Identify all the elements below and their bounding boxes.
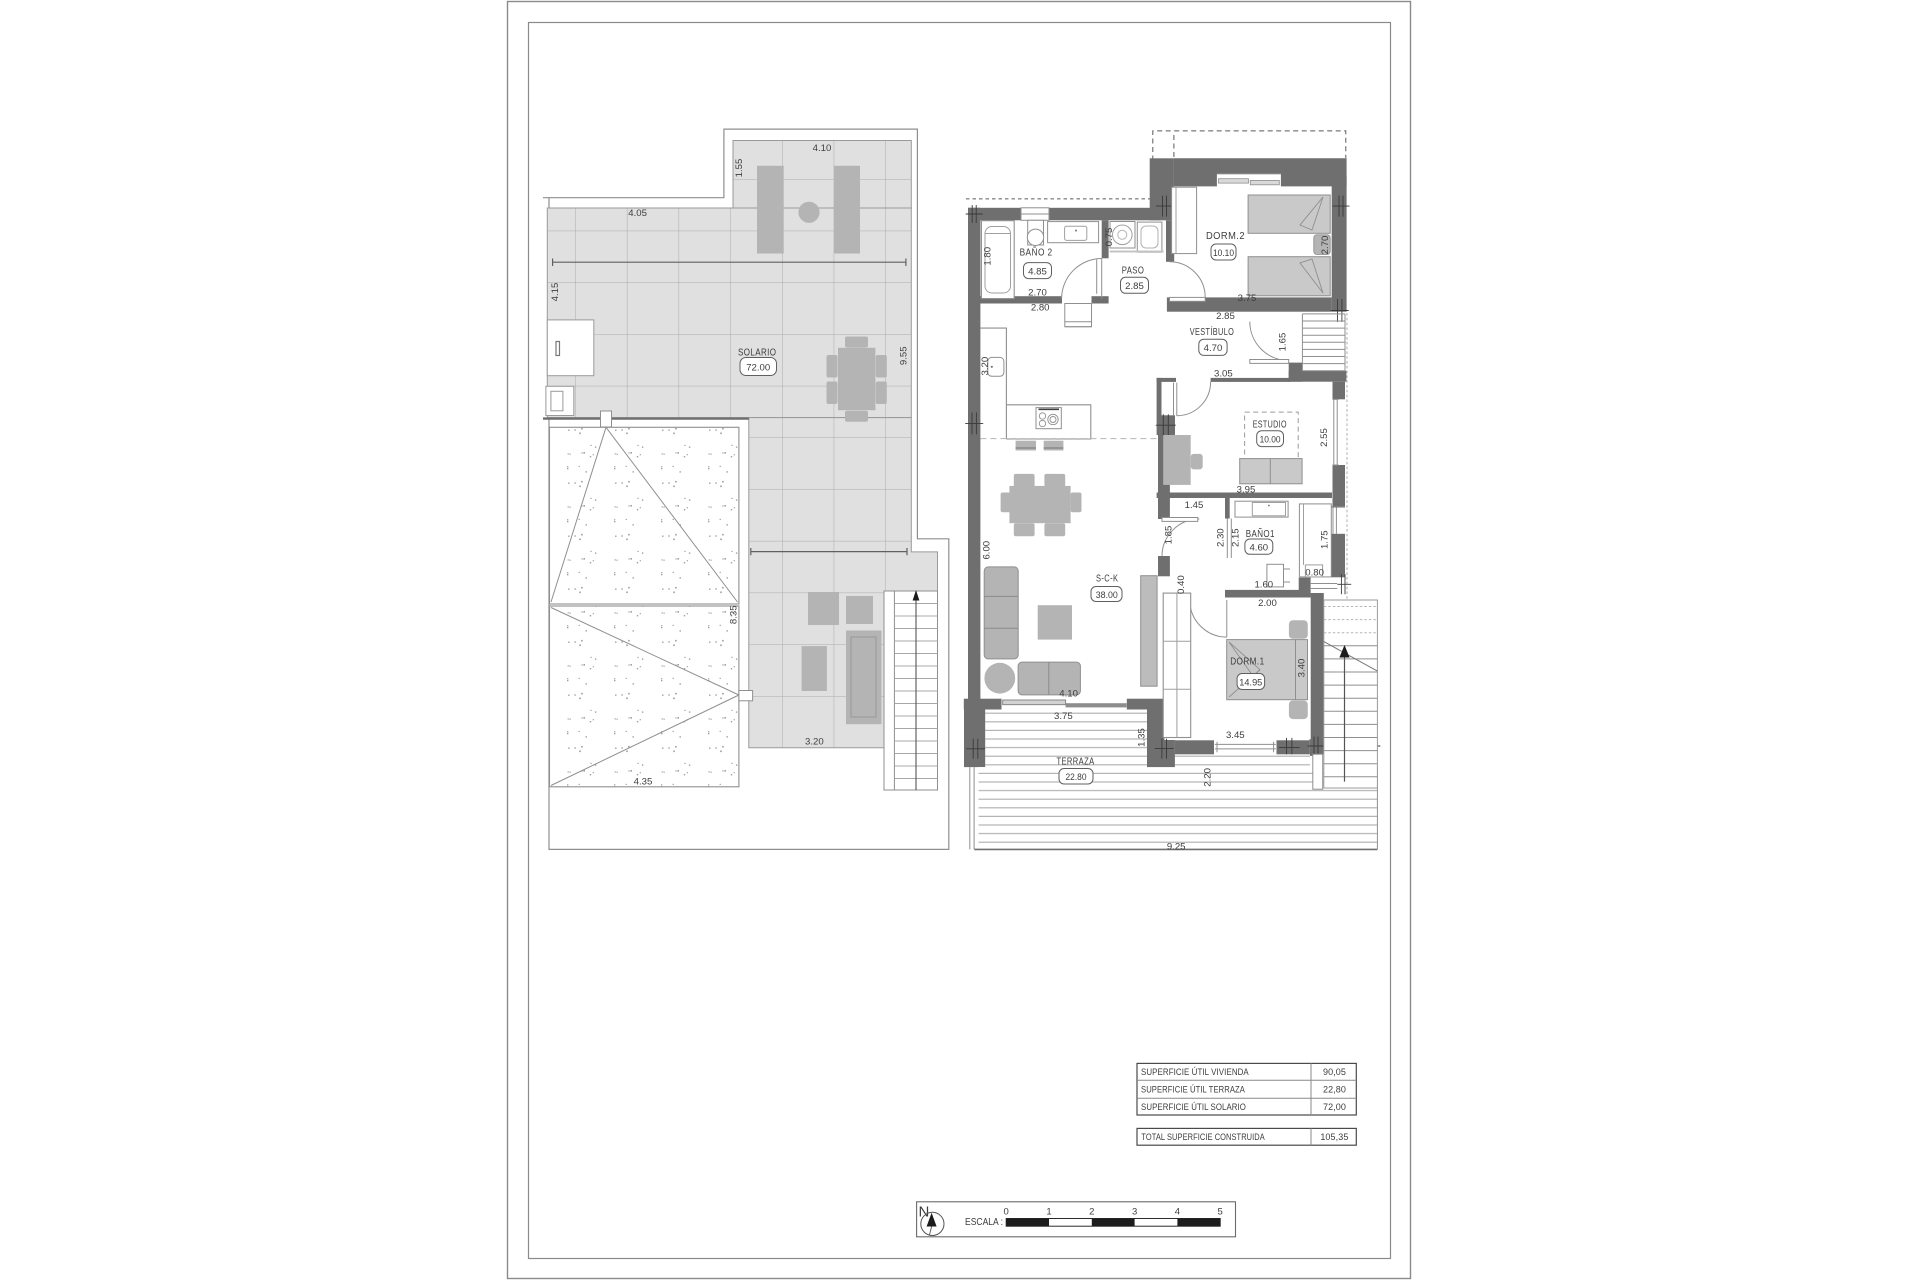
svg-text:PASO: PASO (1122, 266, 1145, 277)
svg-text:2.80: 2.80 (1031, 303, 1050, 314)
svg-text:4: 4 (1175, 1207, 1180, 1218)
svg-text:2.85: 2.85 (1125, 281, 1144, 292)
svg-text:4.85: 4.85 (1028, 266, 1047, 277)
svg-text:4.05: 4.05 (628, 208, 647, 219)
svg-text:9.25: 9.25 (1167, 842, 1186, 853)
svg-text:90,05: 90,05 (1323, 1067, 1346, 1077)
svg-text:3.20: 3.20 (805, 737, 824, 748)
svg-text:22,80: 22,80 (1323, 1085, 1346, 1095)
svg-text:105,35: 105,35 (1320, 1132, 1348, 1142)
svg-text:22.80: 22.80 (1066, 772, 1087, 783)
svg-text:4.10: 4.10 (1059, 689, 1078, 700)
svg-text:N: N (919, 1204, 930, 1221)
svg-text:1: 1 (1046, 1207, 1051, 1218)
svg-text:2.00: 2.00 (1258, 598, 1277, 609)
svg-text:72,00: 72,00 (1323, 1102, 1346, 1112)
svg-text:1.55: 1.55 (734, 159, 745, 178)
svg-text:8.35: 8.35 (729, 605, 740, 624)
svg-text:14.95: 14.95 (1239, 677, 1262, 688)
svg-text:2.15: 2.15 (1231, 528, 1242, 547)
svg-text:72.00: 72.00 (746, 362, 770, 373)
svg-text:1.35: 1.35 (1137, 728, 1148, 747)
svg-text:10.10: 10.10 (1213, 248, 1234, 259)
svg-text:SOLARIO: SOLARIO (738, 347, 777, 358)
svg-text:2.70: 2.70 (1320, 236, 1331, 255)
svg-text:3.95: 3.95 (1237, 485, 1256, 496)
svg-text:3: 3 (1132, 1207, 1137, 1218)
svg-text:0.40: 0.40 (1176, 575, 1187, 594)
svg-text:3.20: 3.20 (980, 357, 991, 376)
svg-text:38.00: 38.00 (1096, 590, 1118, 601)
svg-text:1.80: 1.80 (983, 247, 994, 266)
svg-text:2.20: 2.20 (1202, 768, 1213, 787)
svg-text:SUPERFICIE ÚTIL TERRAZA: SUPERFICIE ÚTIL TERRAZA (1141, 1085, 1245, 1095)
svg-text:5: 5 (1218, 1207, 1223, 1218)
svg-text:0.80: 0.80 (1305, 567, 1324, 578)
svg-text:4.10: 4.10 (813, 143, 832, 154)
svg-text:10.00: 10.00 (1260, 435, 1281, 446)
svg-text:SUPERFICIE ÚTIL SOLARIO: SUPERFICIE ÚTIL SOLARIO (1141, 1102, 1246, 1112)
svg-text:4.15: 4.15 (550, 283, 561, 302)
svg-text:2.55: 2.55 (1319, 428, 1330, 447)
svg-text:6.00: 6.00 (982, 541, 993, 560)
svg-text:3.05: 3.05 (1214, 368, 1233, 379)
svg-text:0.75: 0.75 (1104, 228, 1115, 247)
svg-text:TOTAL SUPERFICIE CONSTRUIDA: TOTAL SUPERFICIE CONSTRUIDA (1141, 1132, 1264, 1142)
svg-text:DORM.1: DORM.1 (1230, 657, 1264, 668)
svg-text:3.45: 3.45 (1226, 730, 1245, 741)
svg-text:9.55: 9.55 (899, 346, 910, 365)
svg-text:1.75: 1.75 (1320, 530, 1331, 549)
svg-text:TERRAZA: TERRAZA (1057, 757, 1095, 768)
svg-text:SUPERFICIE ÚTIL VIVIENDA: SUPERFICIE ÚTIL VIVIENDA (1141, 1067, 1249, 1077)
svg-text:3.40: 3.40 (1297, 659, 1308, 678)
svg-text:BAÑO1: BAÑO1 (1246, 527, 1275, 540)
svg-text:2.30: 2.30 (1216, 528, 1227, 547)
svg-text:ESCALA :: ESCALA : (965, 1217, 1003, 1228)
svg-text:1.65: 1.65 (1278, 333, 1289, 352)
svg-text:1.45: 1.45 (1185, 500, 1204, 511)
svg-text:2.70: 2.70 (1028, 287, 1047, 298)
svg-text:4.70: 4.70 (1204, 343, 1223, 354)
svg-text:3.75: 3.75 (1054, 711, 1073, 722)
svg-text:2: 2 (1089, 1207, 1094, 1218)
svg-text:1.85: 1.85 (1164, 526, 1175, 545)
svg-text:2.85: 2.85 (1216, 311, 1235, 322)
svg-text:S-C-K: S-C-K (1096, 573, 1118, 584)
svg-text:1.60: 1.60 (1254, 579, 1273, 590)
svg-text:VESTÍBULO: VESTÍBULO (1190, 325, 1235, 338)
svg-text:4.35: 4.35 (634, 777, 653, 788)
svg-text:DORM.2: DORM.2 (1206, 231, 1245, 242)
svg-text:4.60: 4.60 (1249, 543, 1268, 554)
svg-text:BAÑO 2: BAÑO 2 (1020, 246, 1053, 259)
svg-text:0: 0 (1004, 1207, 1009, 1218)
svg-text:3.75: 3.75 (1238, 293, 1257, 304)
svg-text:ESTUDIO: ESTUDIO (1253, 420, 1287, 431)
